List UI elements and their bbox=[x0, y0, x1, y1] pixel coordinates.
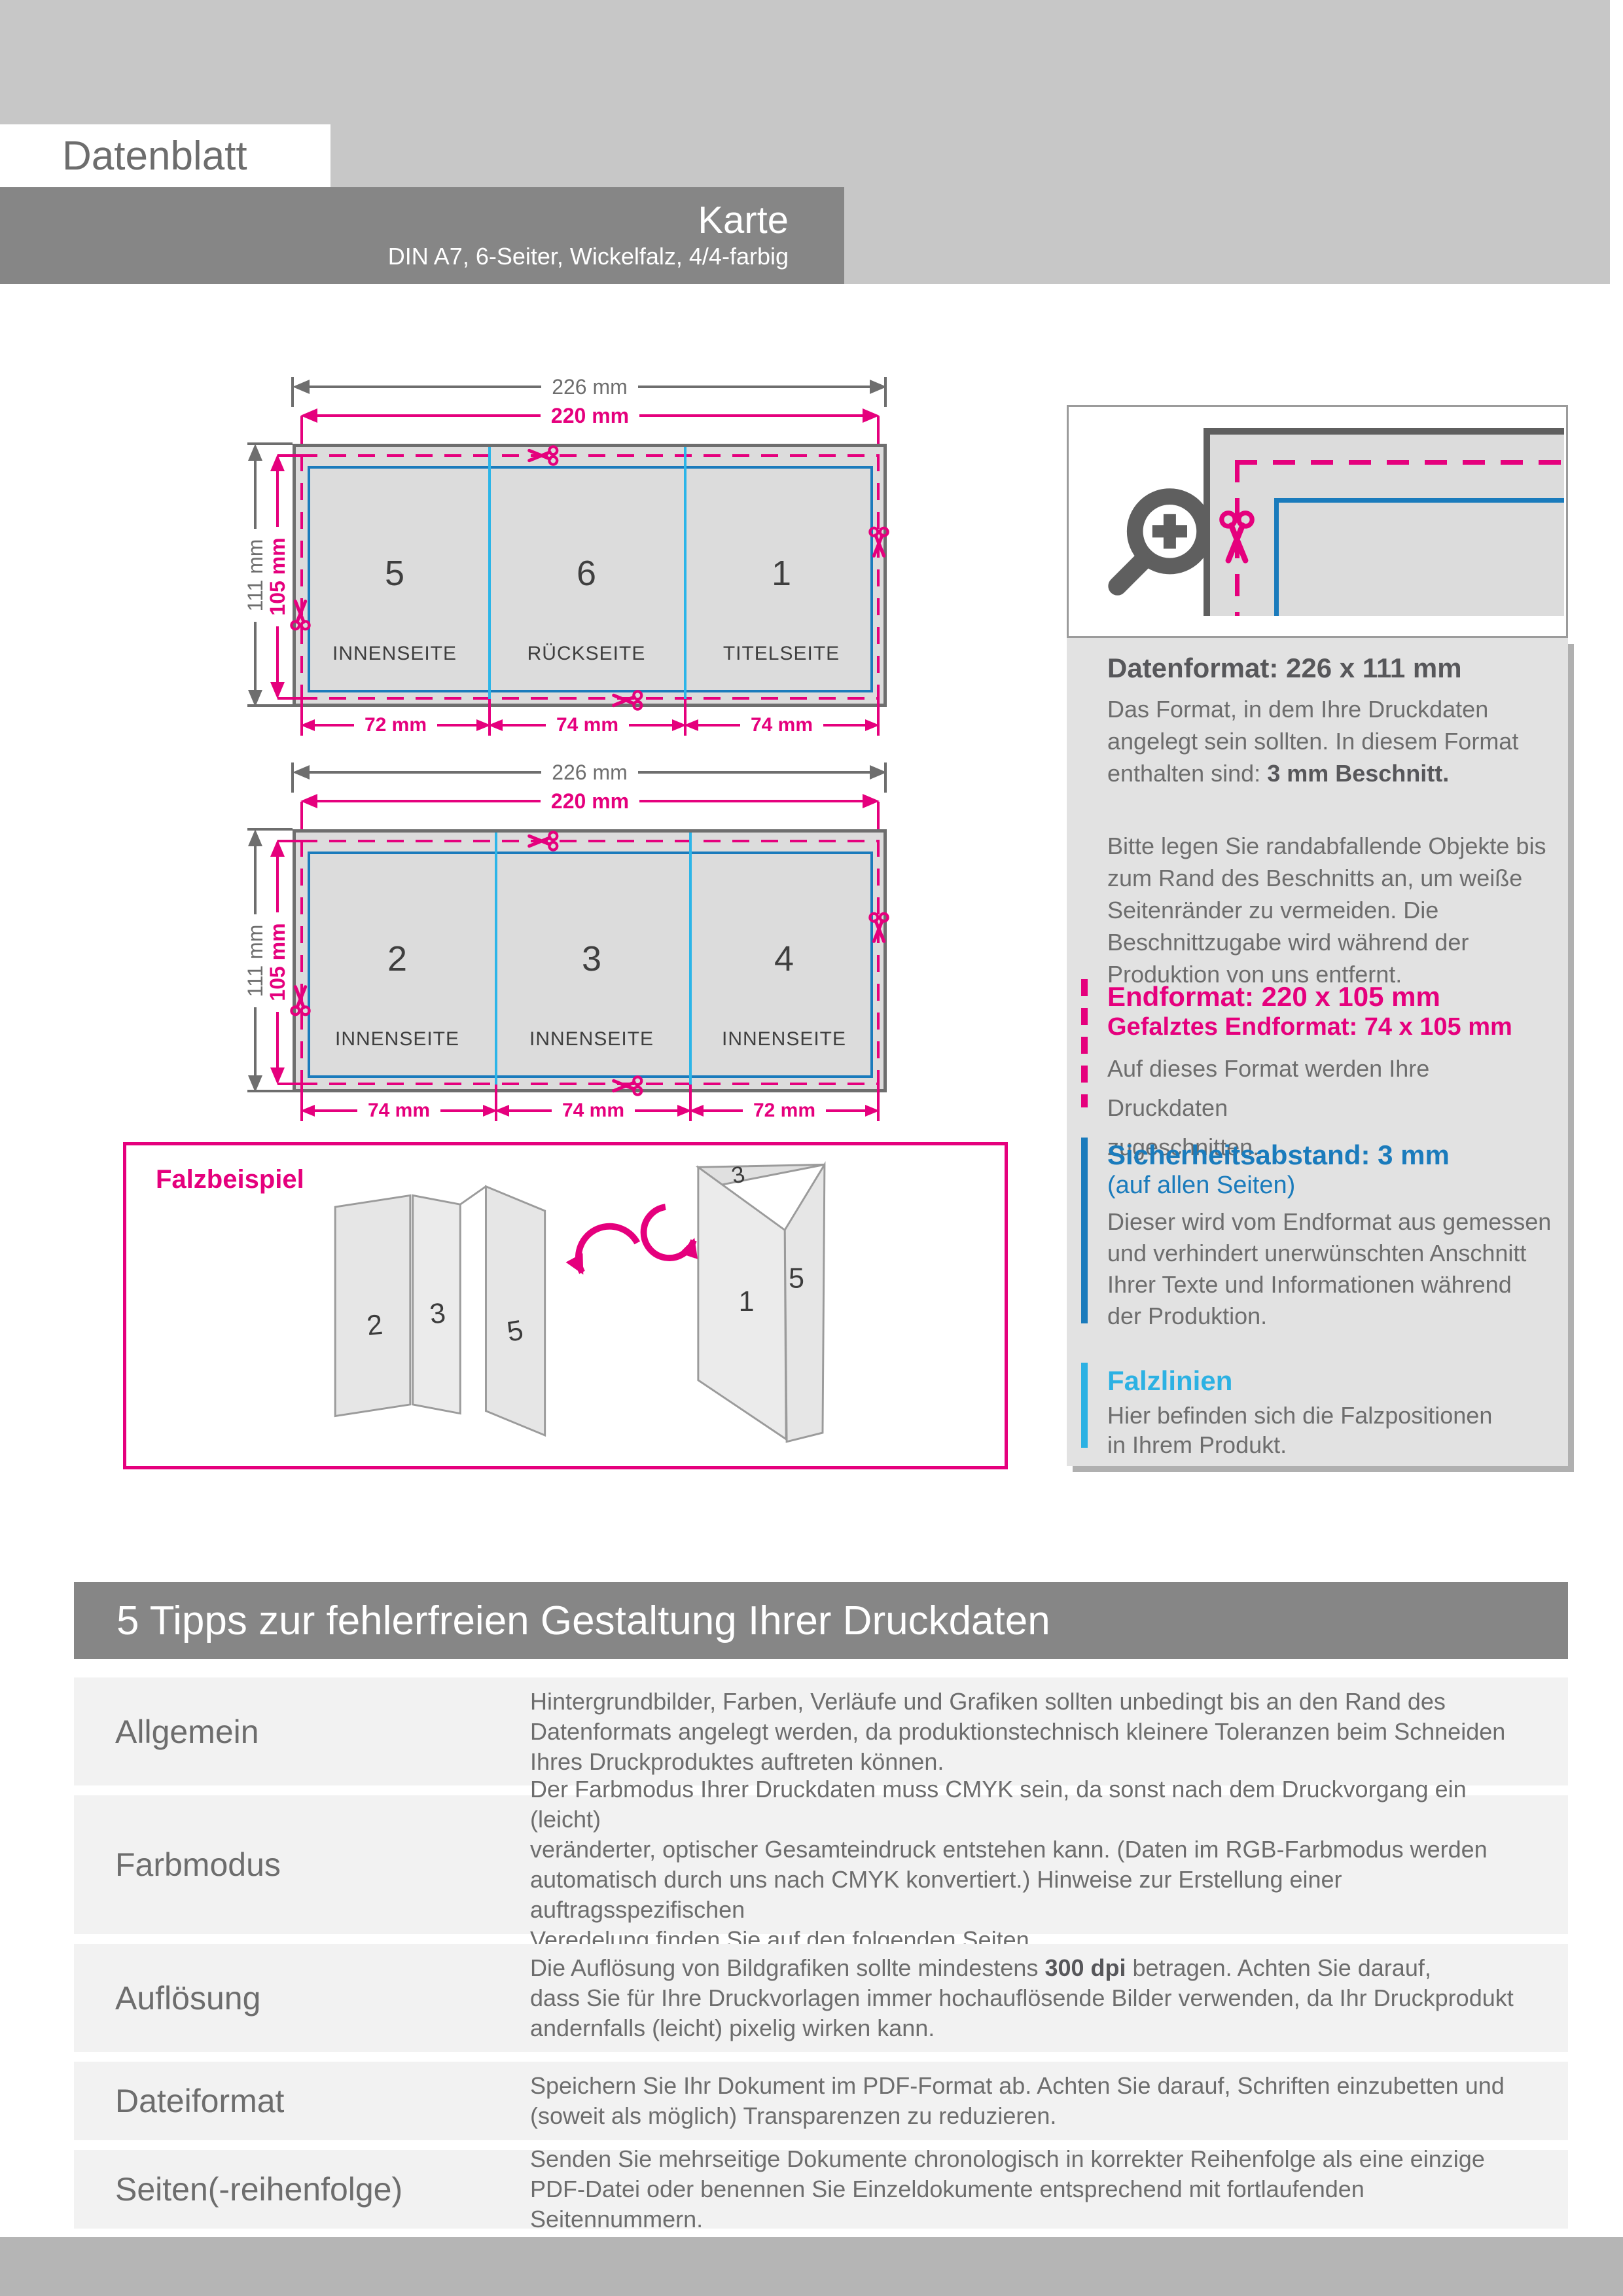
dim-label: 226 mm bbox=[541, 762, 638, 783]
tip-label: Auflösung bbox=[115, 1979, 260, 2017]
panel-caption: INNENSEITE bbox=[507, 1028, 677, 1050]
section-falzlinien: Falzlinien Hier befinden sich die Falzpo… bbox=[1107, 1365, 1554, 1460]
section-heading: Endformat: 220 x 105 mm bbox=[1107, 981, 1554, 1013]
section-heading: Falzlinien bbox=[1107, 1365, 1554, 1397]
svg-text:1: 1 bbox=[739, 1286, 755, 1318]
panel-number: 1 bbox=[742, 553, 821, 594]
section-body: Dieser wird vom Endformat aus gemessen u… bbox=[1107, 1206, 1554, 1332]
scissors-icon bbox=[609, 689, 646, 711]
dim-label: 105 mm bbox=[267, 912, 288, 1011]
section-heading: Datenformat: 226 x 111 mm bbox=[1107, 653, 1554, 684]
dim-label: 105 mm bbox=[267, 527, 288, 626]
scissors-icon bbox=[1218, 505, 1256, 568]
dim-panel-width: 72 mm bbox=[300, 715, 491, 735]
dim-label: 226 mm bbox=[541, 376, 638, 397]
sheet-label: Datenblatt bbox=[62, 133, 247, 179]
dim-final-width-2: 220 mm bbox=[300, 790, 880, 812]
panel-caption: INNENSEITE bbox=[310, 643, 480, 665]
panel-number: 4 bbox=[745, 939, 823, 979]
section-datenformat: Datenformat: 226 x 111 mm Das Format, in… bbox=[1107, 653, 1554, 990]
fold-line-icon bbox=[495, 833, 497, 1090]
tip-text-part: Die Auflösung von Bildgrafiken sollte mi… bbox=[530, 1954, 1044, 1981]
svg-text:5: 5 bbox=[789, 1263, 804, 1295]
dim-panel-width: 74 mm bbox=[300, 1101, 497, 1121]
panel-number: 2 bbox=[358, 939, 437, 979]
body-text-bold: 3 mm Beschnitt. bbox=[1267, 760, 1449, 787]
fold-example-box: 2 3 5 3 5 1 Falzbeispiel bbox=[123, 1142, 1008, 1469]
dim-label: 220 mm bbox=[541, 405, 639, 426]
tip-text: Speichern Sie Ihr Dokument im PDF-Format… bbox=[530, 2071, 1538, 2131]
dim-label: 220 mm bbox=[541, 791, 639, 812]
dim-final-height-2: 105 mm bbox=[266, 840, 289, 1085]
dim-panel-width: 74 mm bbox=[488, 715, 687, 735]
tip-label: Allgemein bbox=[115, 1713, 259, 1751]
endformat-dash-left-1 bbox=[300, 454, 303, 700]
dim-total-width-1: 226 mm bbox=[293, 376, 887, 398]
tip-row-aufloesung: Auflösung Die Auflösung von Bildgrafiken… bbox=[74, 1944, 1568, 2052]
dim-total-height-1: 111 mm bbox=[244, 444, 266, 707]
page-title: Karte bbox=[698, 200, 789, 242]
scissors-icon bbox=[289, 597, 312, 634]
datasheet-page: Datenblatt Karte DIN A7, 6-Seiter, Wicke… bbox=[0, 0, 1623, 2296]
dim-label: 72 mm bbox=[743, 1101, 826, 1121]
zoom-detail-bleed-dash bbox=[1235, 460, 1564, 465]
section-heading: Sicherheitsabstand: 3 mm bbox=[1107, 1139, 1554, 1171]
tip-row-dateiformat: Dateiformat Speichern Sie Ihr Dokument i… bbox=[74, 2062, 1568, 2140]
panel-number: 3 bbox=[552, 939, 631, 979]
dim-label: 74 mm bbox=[546, 715, 629, 735]
zoom-detail-safety-line bbox=[1274, 498, 1279, 616]
dim-final-height-1: 105 mm bbox=[266, 454, 289, 699]
panel-caption: INNENSEITE bbox=[312, 1028, 482, 1050]
tip-text: Der Farbmodus Ihrer Druckdaten muss CMYK… bbox=[530, 1774, 1538, 1955]
section-body: Das Format, in dem Ihre Druckdaten angel… bbox=[1107, 693, 1554, 789]
scissors-icon bbox=[868, 524, 890, 560]
dim-panel-width: 74 mm bbox=[684, 715, 880, 735]
dim-label: 111 mm bbox=[245, 914, 266, 1008]
tip-label: Seiten(-reihenfolge) bbox=[115, 2170, 402, 2208]
fold-line-icon bbox=[689, 833, 692, 1090]
panel-caption: INNENSEITE bbox=[699, 1028, 869, 1050]
zoom-detail-frame-top bbox=[1204, 428, 1564, 435]
sheet-label-box: Datenblatt bbox=[0, 124, 330, 187]
fold-example-title: Falzbeispiel bbox=[156, 1165, 304, 1194]
zoom-detail-safety-line bbox=[1274, 498, 1564, 503]
scissors-icon bbox=[525, 830, 562, 852]
section-sicherheitsabstand: Sicherheitsabstand: 3 mm (auf allen Seit… bbox=[1107, 1139, 1554, 1332]
tip-text: Senden Sie mehrseitige Dokumente chronol… bbox=[530, 2144, 1538, 2234]
endformat-dash-right-1 bbox=[877, 454, 880, 700]
endformat-dash-bottom-2 bbox=[300, 1083, 880, 1085]
dim-label: 74 mm bbox=[740, 715, 823, 735]
section-subheading: Gefalztes Endformat: 74 x 105 mm bbox=[1107, 1013, 1554, 1043]
scissors-icon bbox=[868, 909, 890, 946]
tip-row-farbmodus: Farbmodus Der Farbmodus Ihrer Druckdaten… bbox=[74, 1795, 1568, 1934]
endformat-dash-left-2 bbox=[300, 840, 303, 1085]
zoom-detail-frame-left bbox=[1204, 428, 1210, 616]
section-body: Hier befinden sich die Falzpositionen in… bbox=[1107, 1401, 1554, 1460]
page-subtitle: DIN A7, 6-Seiter, Wickelfalz, 4/4-farbig bbox=[388, 242, 789, 272]
tip-text-bold: 300 dpi bbox=[1044, 1954, 1126, 1981]
endformat-dash-right-2 bbox=[877, 840, 880, 1085]
dim-label: 74 mm bbox=[552, 1101, 635, 1121]
endformat-dash-top-2 bbox=[300, 840, 880, 842]
tips-heading: 5 Tipps zur fehlerfreien Gestaltung Ihre… bbox=[116, 1598, 1050, 1644]
panel-caption: RÜCKSEITE bbox=[501, 643, 671, 665]
zoom-detail-sheet bbox=[1204, 428, 1564, 616]
tip-text: Hintergrundbilder, Farben, Verläufe und … bbox=[530, 1687, 1538, 1777]
footer-bar bbox=[0, 2237, 1623, 2296]
section-body: Bitte legen Sie randabfallende Objekte b… bbox=[1107, 830, 1554, 990]
tip-row-seitenreihenfolge: Seiten(-reihenfolge) Senden Sie mehrseit… bbox=[74, 2150, 1568, 2229]
safety-bar bbox=[1081, 1138, 1088, 1323]
panel-number: 5 bbox=[355, 553, 434, 594]
dim-label: 111 mm bbox=[245, 529, 266, 622]
tips-header-bar: 5 Tipps zur fehlerfreien Gestaltung Ihre… bbox=[74, 1582, 1568, 1659]
dim-total-width-2: 226 mm bbox=[293, 761, 887, 783]
fold-line-icon bbox=[488, 447, 491, 704]
endformat-dash-bar bbox=[1081, 979, 1088, 1107]
dim-final-width-1: 220 mm bbox=[300, 404, 880, 427]
dim-panel-width: 74 mm bbox=[495, 1101, 692, 1121]
title-bar: Karte DIN A7, 6-Seiter, Wickelfalz, 4/4-… bbox=[0, 187, 844, 284]
dim-label: 74 mm bbox=[357, 1101, 440, 1121]
foldline-bar bbox=[1081, 1363, 1088, 1448]
svg-text:2: 2 bbox=[365, 1309, 384, 1342]
dim-panel-width: 72 mm bbox=[689, 1101, 880, 1121]
scissors-icon bbox=[525, 444, 562, 467]
tip-label: Farbmodus bbox=[115, 1846, 281, 1884]
format-info-panel: Datenformat: 226 x 111 mm Das Format, in… bbox=[1067, 638, 1568, 1466]
tip-text: Die Auflösung von Bildgrafiken sollte mi… bbox=[530, 1953, 1538, 2043]
panel-number: 6 bbox=[547, 553, 626, 594]
zoom-detail-box bbox=[1067, 405, 1568, 638]
tip-label: Dateiformat bbox=[115, 2082, 284, 2120]
dim-label: 72 mm bbox=[354, 715, 437, 735]
endformat-dash-top-1 bbox=[300, 454, 880, 457]
scissors-icon bbox=[289, 982, 312, 1019]
scissors-icon bbox=[609, 1075, 646, 1097]
dim-total-height-2: 111 mm bbox=[244, 829, 266, 1092]
section-subheading: (auf allen Seiten) bbox=[1107, 1171, 1554, 1201]
panel-caption: TITELSEITE bbox=[696, 643, 866, 665]
fold-line-icon bbox=[684, 447, 687, 704]
svg-text:3: 3 bbox=[428, 1297, 447, 1330]
endformat-dash-bottom-1 bbox=[300, 697, 880, 700]
tip-row-allgemein: Allgemein Hintergrundbilder, Farben, Ver… bbox=[74, 1677, 1568, 1785]
